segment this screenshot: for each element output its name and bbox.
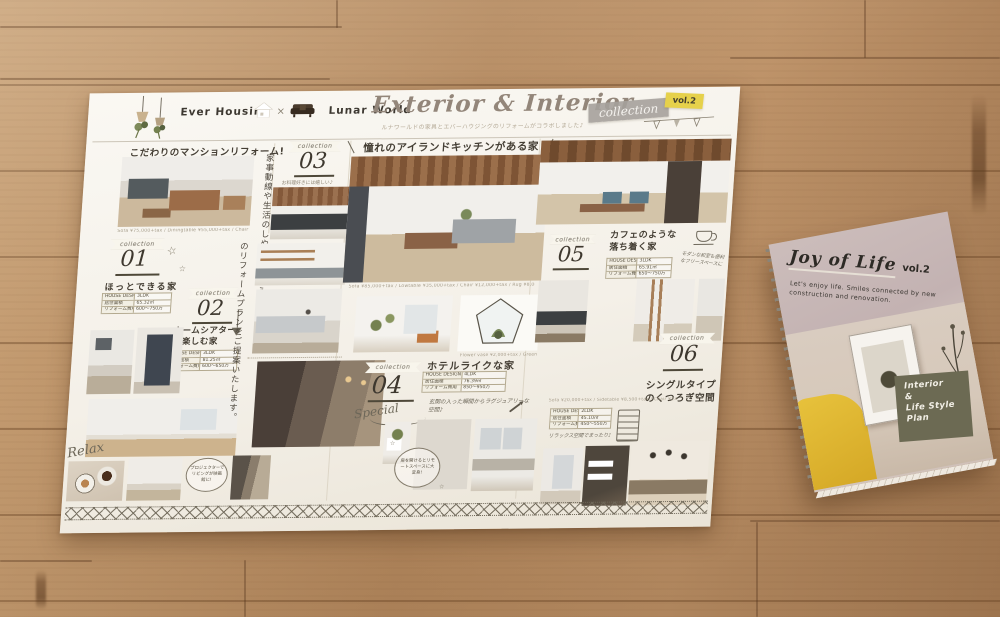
wood-seam [0,78,330,80]
spec-label: 居住面積 [102,300,134,306]
speech-bubble-projector: プロジェクターでリビングが映画館に! [185,458,229,492]
spec-label: 居住面積 [423,379,462,385]
photo-partition-room [633,279,695,342]
section-note-05: モダンな和室も便利なフリースペースに [679,251,725,269]
photo-window-curtains [540,448,584,504]
spec-label: リフォーム費用 [550,422,579,428]
spec-label: HOUSE DESIGN [607,259,637,265]
section-number-03: 03 [298,151,328,173]
photo-scene: Ever Housing × Lunar World Exterior & In… [0,0,1000,617]
booklet-subtitle: Let's enjoy life. Smiles connected by ne… [789,279,948,310]
number-underline [192,322,232,324]
spec-value: 2LDK [579,409,611,415]
section-note-06: リラックス空間でまったり♪ [548,431,645,439]
spec-label: リフォーム費用 [102,307,134,313]
photo-kitchen-wood-ceiling [270,187,352,240]
number-underline [663,369,703,371]
spec-value: 76.39㎡ [461,378,505,384]
sofa-icon [290,102,315,118]
number-underline [115,274,159,276]
newsletter-sheet: Ever Housing × Lunar World Exterior & In… [60,87,741,534]
tape-vol-label: vol.2 [672,95,697,106]
hanging-plant-photo [127,96,176,141]
photo-living-room-sofa [118,156,255,227]
lattice-border [65,501,708,521]
number-underline [553,268,589,270]
spec-value: 850〜950万 [461,385,505,391]
section-note-03: お料理好きには嬉しい♪ [281,179,356,187]
section-number-02: 02 [196,298,224,319]
spec-label: HOUSE DESIGN [551,409,580,415]
star-doodle: ☆ [178,264,186,273]
spec-row: リフォーム費用600〜750万 [102,307,171,314]
section-title-05: カフェのような落ち着く家 [609,229,681,254]
section-number-06: 06 [669,344,699,366]
spec-label: HOUSE DESIGN [423,372,462,378]
wood-seam [244,560,246,617]
spec-table-05: HOUSE DESIGN3LDK 居住面積65.91㎡ リフォーム費用650〜7… [605,257,672,278]
booklet-badge: Interior & Life Style Plan [894,370,973,442]
spec-table-04: HOUSE DESIGN4LDK 居住面積76.39㎡ リフォーム費用850〜9… [421,371,506,393]
collab-times: × [276,106,285,117]
spec-value: 650〜750万 [636,271,670,277]
photo-pale-room [126,458,183,501]
photo-white-kitchen [86,330,134,394]
terrarium-icon [470,297,528,350]
photo-island-kitchen-living [343,155,550,283]
spec-value: 65.32㎡ [134,300,170,306]
wood-seam [0,26,342,28]
photo-bright-living-plants [353,295,453,352]
coffee-cup-icon [696,231,713,242]
house-icon [254,102,273,117]
bubble-text: プロジェクターでリビングが映画館に! [189,466,224,484]
spec-label: 居住面積 [607,265,637,271]
spec-table-01: HOUSE DESIGN3LDK 居住面積65.32㎡ リフォーム費用600〜7… [101,292,172,314]
photo-window-room [695,279,725,341]
washi-tape-vol: vol.2 [664,92,704,109]
booklet-title-row: Joy of Lifevol.2 [789,247,931,278]
section-title-01: ほっとできる家 [104,279,178,293]
wood-seam [750,520,1000,522]
dotted-divider [248,357,342,359]
spec-row: リフォーム費用650〜750万 [606,271,670,278]
wood-seam [0,560,92,562]
spec-row: リフォーム費用850〜950万 [422,385,505,392]
spec-label: 居住面積 [550,416,579,422]
spec-value: 65.91㎡ [637,265,671,271]
spec-value: 45.10㎡ [579,415,611,421]
spec-label: HOUSE DESIGN [103,294,135,300]
spec-value: 4LDK [462,372,506,378]
section-number-01: 01 [120,249,150,271]
spec-value: 3LDK [135,293,171,299]
wood-knot [36,570,46,610]
photo-open-shelves [255,243,348,286]
photo-price-caption: Sofa ¥75,000+tax / Diningtable ¥55,000+t… [117,228,249,234]
photo-dining-room [536,139,732,225]
wood-seam [864,0,866,58]
photo-dark-kitchen [535,280,589,343]
section-number-05: 05 [557,244,585,265]
wood-seam [336,0,338,28]
spec-table-06: HOUSE DESIGN2LDK 居住面積45.10㎡ リフォーム費用450〜5… [549,408,612,429]
bubble-text: 扉を開けるとリモートスペースに大変身! [398,459,437,477]
photo-pendant-kitchen [628,441,710,506]
photo-empty-room [85,398,239,458]
spec-label: リフォーム費用 [606,272,636,278]
photo-coffee-cups [66,461,125,502]
sparkle-doodle: ☆ [390,440,396,447]
spec-value: 600〜750万 [134,307,170,313]
photo-kitchen-sink [252,289,342,354]
wood-knot [972,95,986,215]
photo-dark-shelf [582,445,630,505]
relax-handwriting: Relax [67,440,105,462]
number-underline [294,175,334,177]
booklet-vol: vol.2 [902,263,930,276]
photo-dark-hallway [230,455,271,499]
booklet-title: Joy of Life [789,247,898,278]
page-subtitle: ルナワールドの家具とエバーハウジングのリフォームがコラボしました♪ [381,120,584,131]
booklet-cover-photo: Interior & Life Style Plan [785,302,993,491]
section-number-04: 04 [371,373,403,397]
star-doodle: ☆ [166,243,178,258]
garland-doodle [643,115,714,132]
center-headline: 憧れのアイランドキッチンがある家 [356,139,547,156]
spec-value: 3LDK [637,258,671,264]
spec-row: リフォーム費用450〜550万 [550,422,610,429]
spec-label: リフォーム費用 [422,385,461,391]
sparkle-doodle: ☆ [439,483,445,490]
photo-price-caption: Sofa ¥85,000+tax / Lowtable ¥35,000+tax … [348,283,534,290]
photo-navy-door [133,327,184,393]
booklet-joy-of-life: Joy of Lifevol.2 Let's enjoy life. Smile… [769,212,994,493]
wood-seam [756,522,758,617]
spec-value: 450〜550万 [578,422,610,428]
section-note-04: 玄関の入った瞬間からラグジュアリーな空間♪ [428,399,533,416]
photo-washroom-vanity [471,418,538,491]
